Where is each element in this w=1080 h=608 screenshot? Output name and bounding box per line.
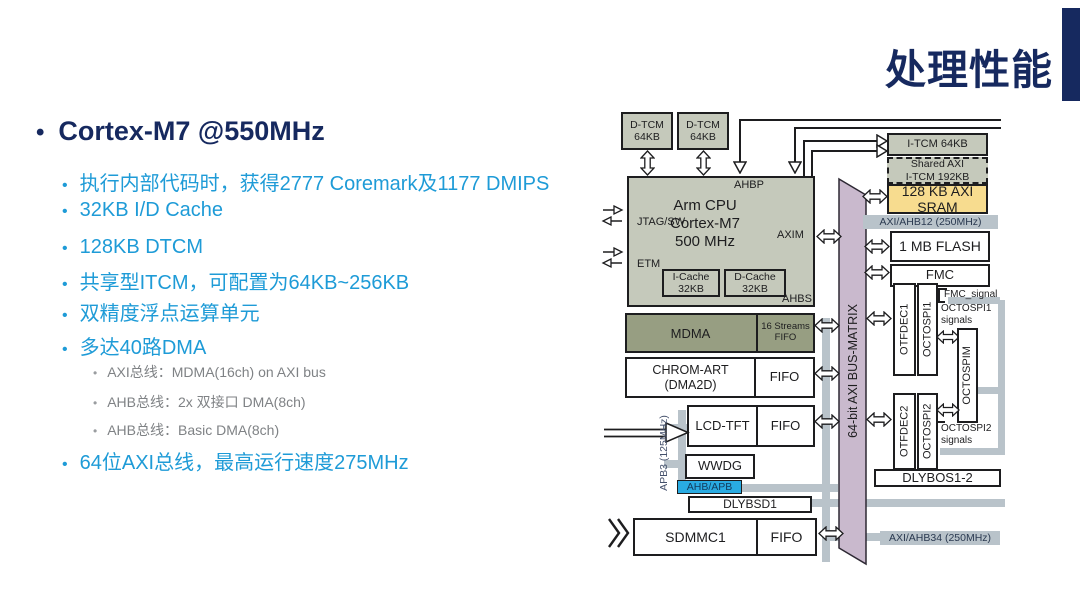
bullet-subitem: AHB总线：2x 双接口 DMA(8ch) [93,392,306,412]
ahbp-line [794,127,1001,129]
axi-ahb12-bus-bar: AXI/AHB12 (250MHz) [863,215,998,229]
bullet-item: 执行内部代码时，获得2777 Coremark及1177 DMIPS [62,167,549,196]
bullet-subitem: AHB总线：Basic DMA(8ch) [93,420,279,440]
ahb-apb-bridge-box: AHB/APB [677,480,742,494]
shared-itcm-box: Shared AXI I-TCM 192KB [887,157,988,184]
itcm-line [803,140,805,177]
bullet-subitem: AXI总线：MDMA(16ch) on AXI bus [93,362,326,382]
ahbp-line [739,119,1001,121]
title-accent-bar [1062,8,1080,101]
otfdec1-box: OTFDEC1 [893,283,916,376]
bullet-item: 双精度浮点运算单元 [62,297,260,326]
jtag-arrows-icon [602,205,624,227]
bidir-arrow-icon [866,412,892,427]
wwdg-box: WWDG [685,454,755,479]
bidir-arrow-icon [936,403,960,417]
bus-matrix-label: 64-bit AXI BUS-MATRIX [838,180,867,562]
page-title: 处理性能 [885,36,1053,96]
bidir-arrow-icon [814,414,840,429]
mdma-label: MDMA [625,313,756,353]
mdma-fifo-box: 16 Streams FIFO [756,313,815,353]
bidir-arrow-icon [696,150,711,176]
flash-box: 1 MB FLASH [890,231,990,262]
sdmmc-fifo-box: FIFO [756,518,817,556]
itcm-line [811,150,878,152]
dlybos-box: DLYBOS1-2 [874,469,1001,487]
ahbp-line [739,119,741,163]
lcdtft-fifo-box: FIFO [756,405,815,447]
bidir-arrow-icon [814,366,840,381]
axi-ahb34-bus-bar: AXI/AHB34 (250MHz) [880,531,1000,545]
bullet-item: 128KB DTCM [62,236,203,259]
itcm-line [811,150,813,177]
bullet-item: 32KB I/D Cache [62,199,223,222]
ahb-apb-bus-line [742,484,838,492]
icache-box: I-Cache 32KB [662,269,720,297]
bidir-arrow-icon [862,189,888,204]
bidir-arrow-icon [866,311,892,326]
ahbs-label: AHBS [782,293,812,305]
octospi1-box: OCTOSPI1 [917,283,938,376]
bidir-arrow-icon [640,150,655,176]
bullet-item: 多达40路DMA [62,331,206,360]
ahbp-label: AHBP [734,179,764,191]
itcm-line [803,140,878,142]
dtcm2-box: D-TCM 64KB [677,112,729,150]
etm-label: ETM [637,258,660,270]
chromart-fifo-box: FIFO [754,357,815,398]
octospim-bus-stub [978,387,1002,394]
octospi2-box: OCTOSPI2 [917,393,938,470]
chromart-box: CHROM-ART (DMA2D) [625,357,756,398]
bidir-arrow-icon [814,318,840,333]
dtcm1-box: D-TCM 64KB [621,112,673,150]
slide: 处理性能 Cortex-M7 @550MHz 执行内部代码时，获得2777 Co… [0,0,1080,608]
octospi1-signals-label: OCTOSPI1 signals [941,303,991,326]
sdmmc1-box: SDMMC1 [633,518,758,556]
ahbp-line [794,127,796,163]
octospim-box: OCTOSPIM [957,328,978,423]
itcm-box: I-TCM 64KB [887,133,988,156]
dlybsd1-box: DLYBSD1 [688,496,812,513]
bullet-item: 64位AXI总线，最高运行速度275MHz [62,446,409,475]
bidir-arrow-icon [864,265,890,280]
octospi2-bus-stub [940,448,1000,455]
axim-label: AXIM [777,229,804,241]
bidir-arrow-icon [816,229,842,244]
jtag-label: JTAG/SW [637,216,685,228]
down-arrow-icon [788,161,802,174]
bullet-item: 共享型ITCM，可配置为64KB~256KB [62,266,409,295]
bullet-heading: Cortex-M7 @550MHz [36,116,325,147]
sdmmc-input-arrow-icon [606,516,632,550]
axi-sram-box: 128 KB AXI SRAM [887,184,988,214]
down-arrow-icon [733,161,747,174]
apb3-label: APB3 (125MHz) [650,405,678,500]
fmc-signal-label: FMC_signal [944,289,997,301]
bidir-arrow-icon [864,239,890,254]
bidir-arrow-icon [818,526,844,541]
dcache-box: D-Cache 32KB [724,269,786,297]
etm-arrows-icon [602,247,624,269]
octospi2-signals-label: OCTOSPI2 signals [941,423,991,446]
octospi-bus-line [998,300,1005,455]
lcdtft-box: LCD-TFT [687,405,758,447]
otfdec2-box: OTFDEC2 [893,393,916,470]
